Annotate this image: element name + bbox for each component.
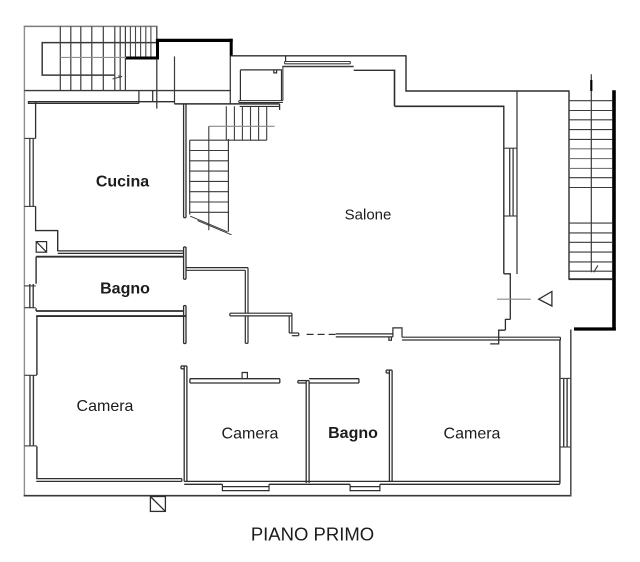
svg-text:Cucina: Cucina xyxy=(96,174,149,191)
svg-text:Salone: Salone xyxy=(345,207,392,224)
svg-text:Camera: Camera xyxy=(77,398,134,415)
svg-text:Camera: Camera xyxy=(222,425,279,442)
svg-text:Bagno: Bagno xyxy=(328,425,378,442)
svg-text:Camera: Camera xyxy=(444,425,501,442)
svg-text:Bagno: Bagno xyxy=(100,280,150,297)
svg-text:PIANO PRIMO: PIANO PRIMO xyxy=(251,524,374,545)
